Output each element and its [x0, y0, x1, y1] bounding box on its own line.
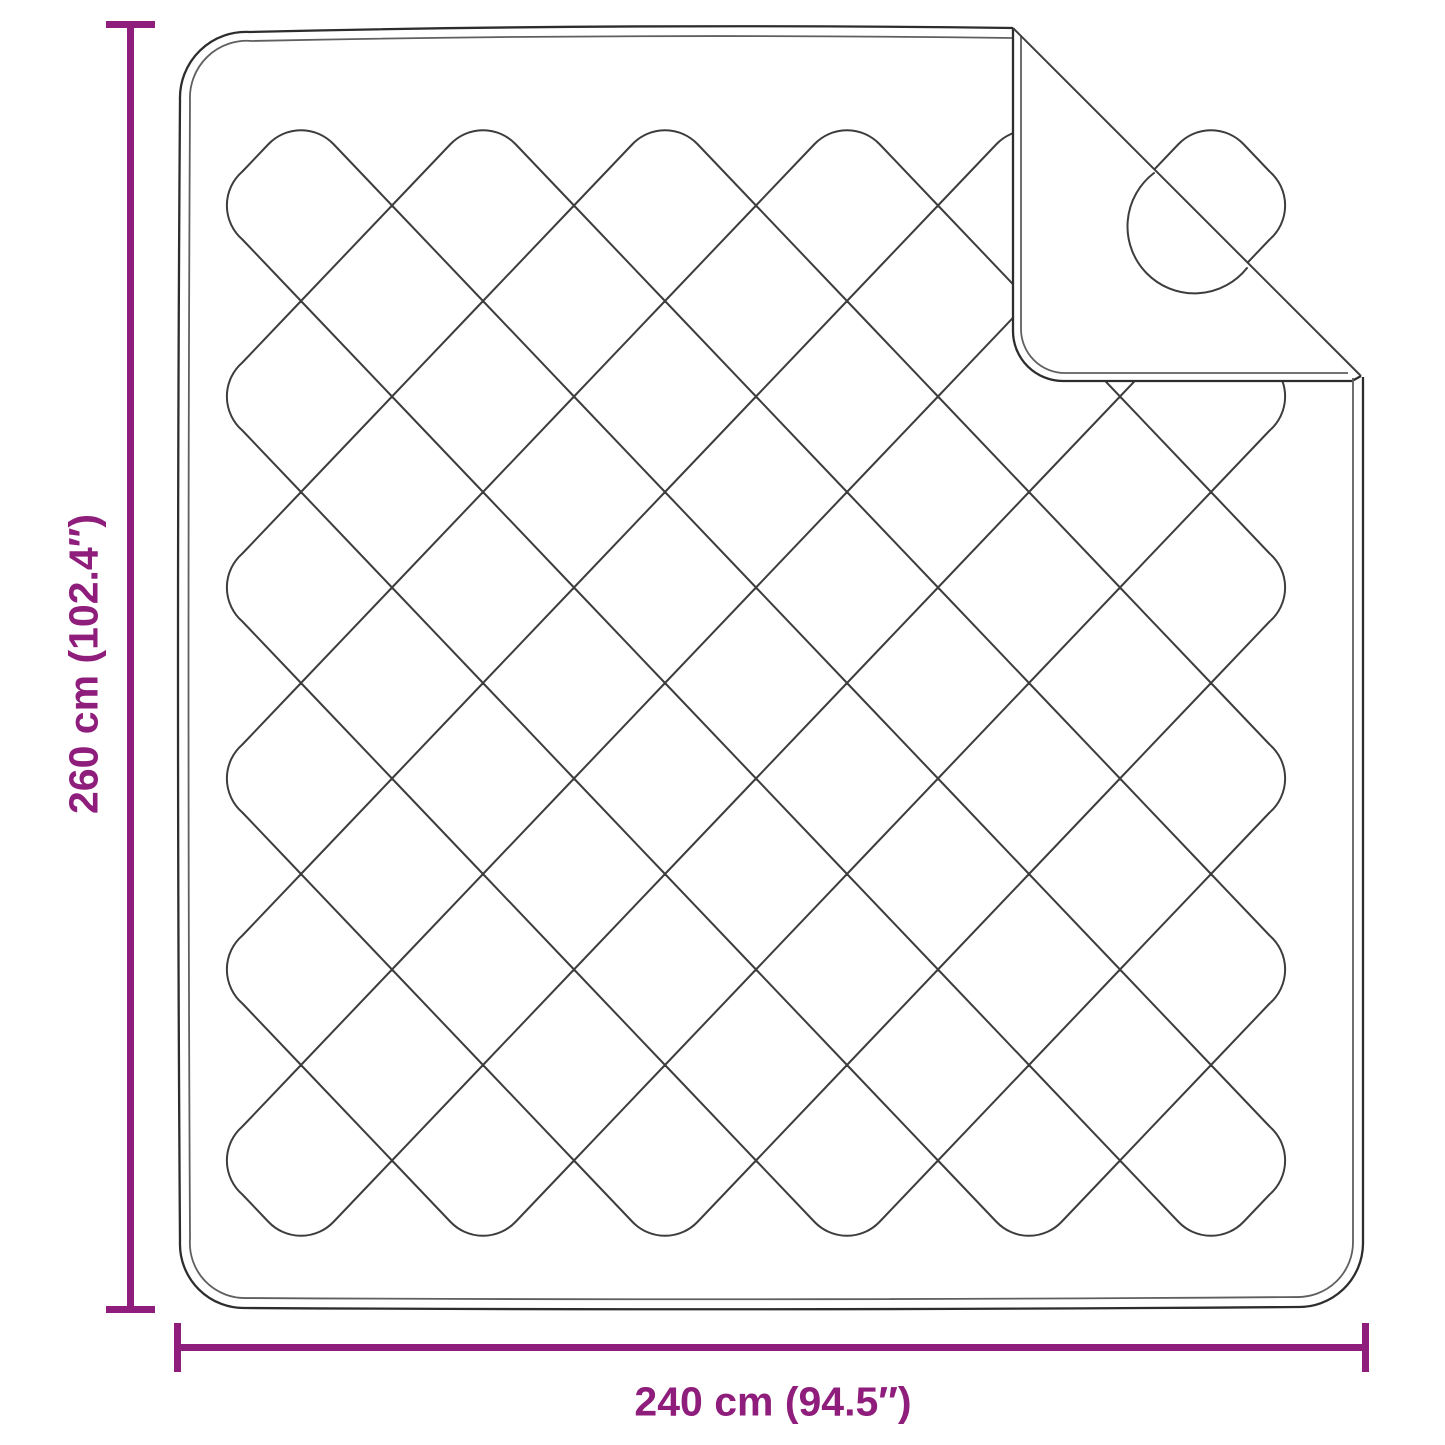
width-dimension-cap-right [1362, 1323, 1369, 1372]
width-dimension-cap-left [174, 1323, 181, 1372]
width-dimension-line [177, 1344, 1367, 1351]
height-dimension-cap-bottom [106, 1306, 155, 1313]
height-dimension-label: 260 cm (102.4″) [61, 514, 108, 814]
blanket-drawing [0, 0, 1445, 1445]
blanket-dimension-diagram: 260 cm (102.4″) 240 cm (94.5″) [0, 0, 1445, 1445]
height-dimension-cap-top [106, 21, 155, 28]
height-dimension-line [127, 24, 134, 1310]
width-dimension-label: 240 cm (94.5″) [634, 1379, 911, 1426]
